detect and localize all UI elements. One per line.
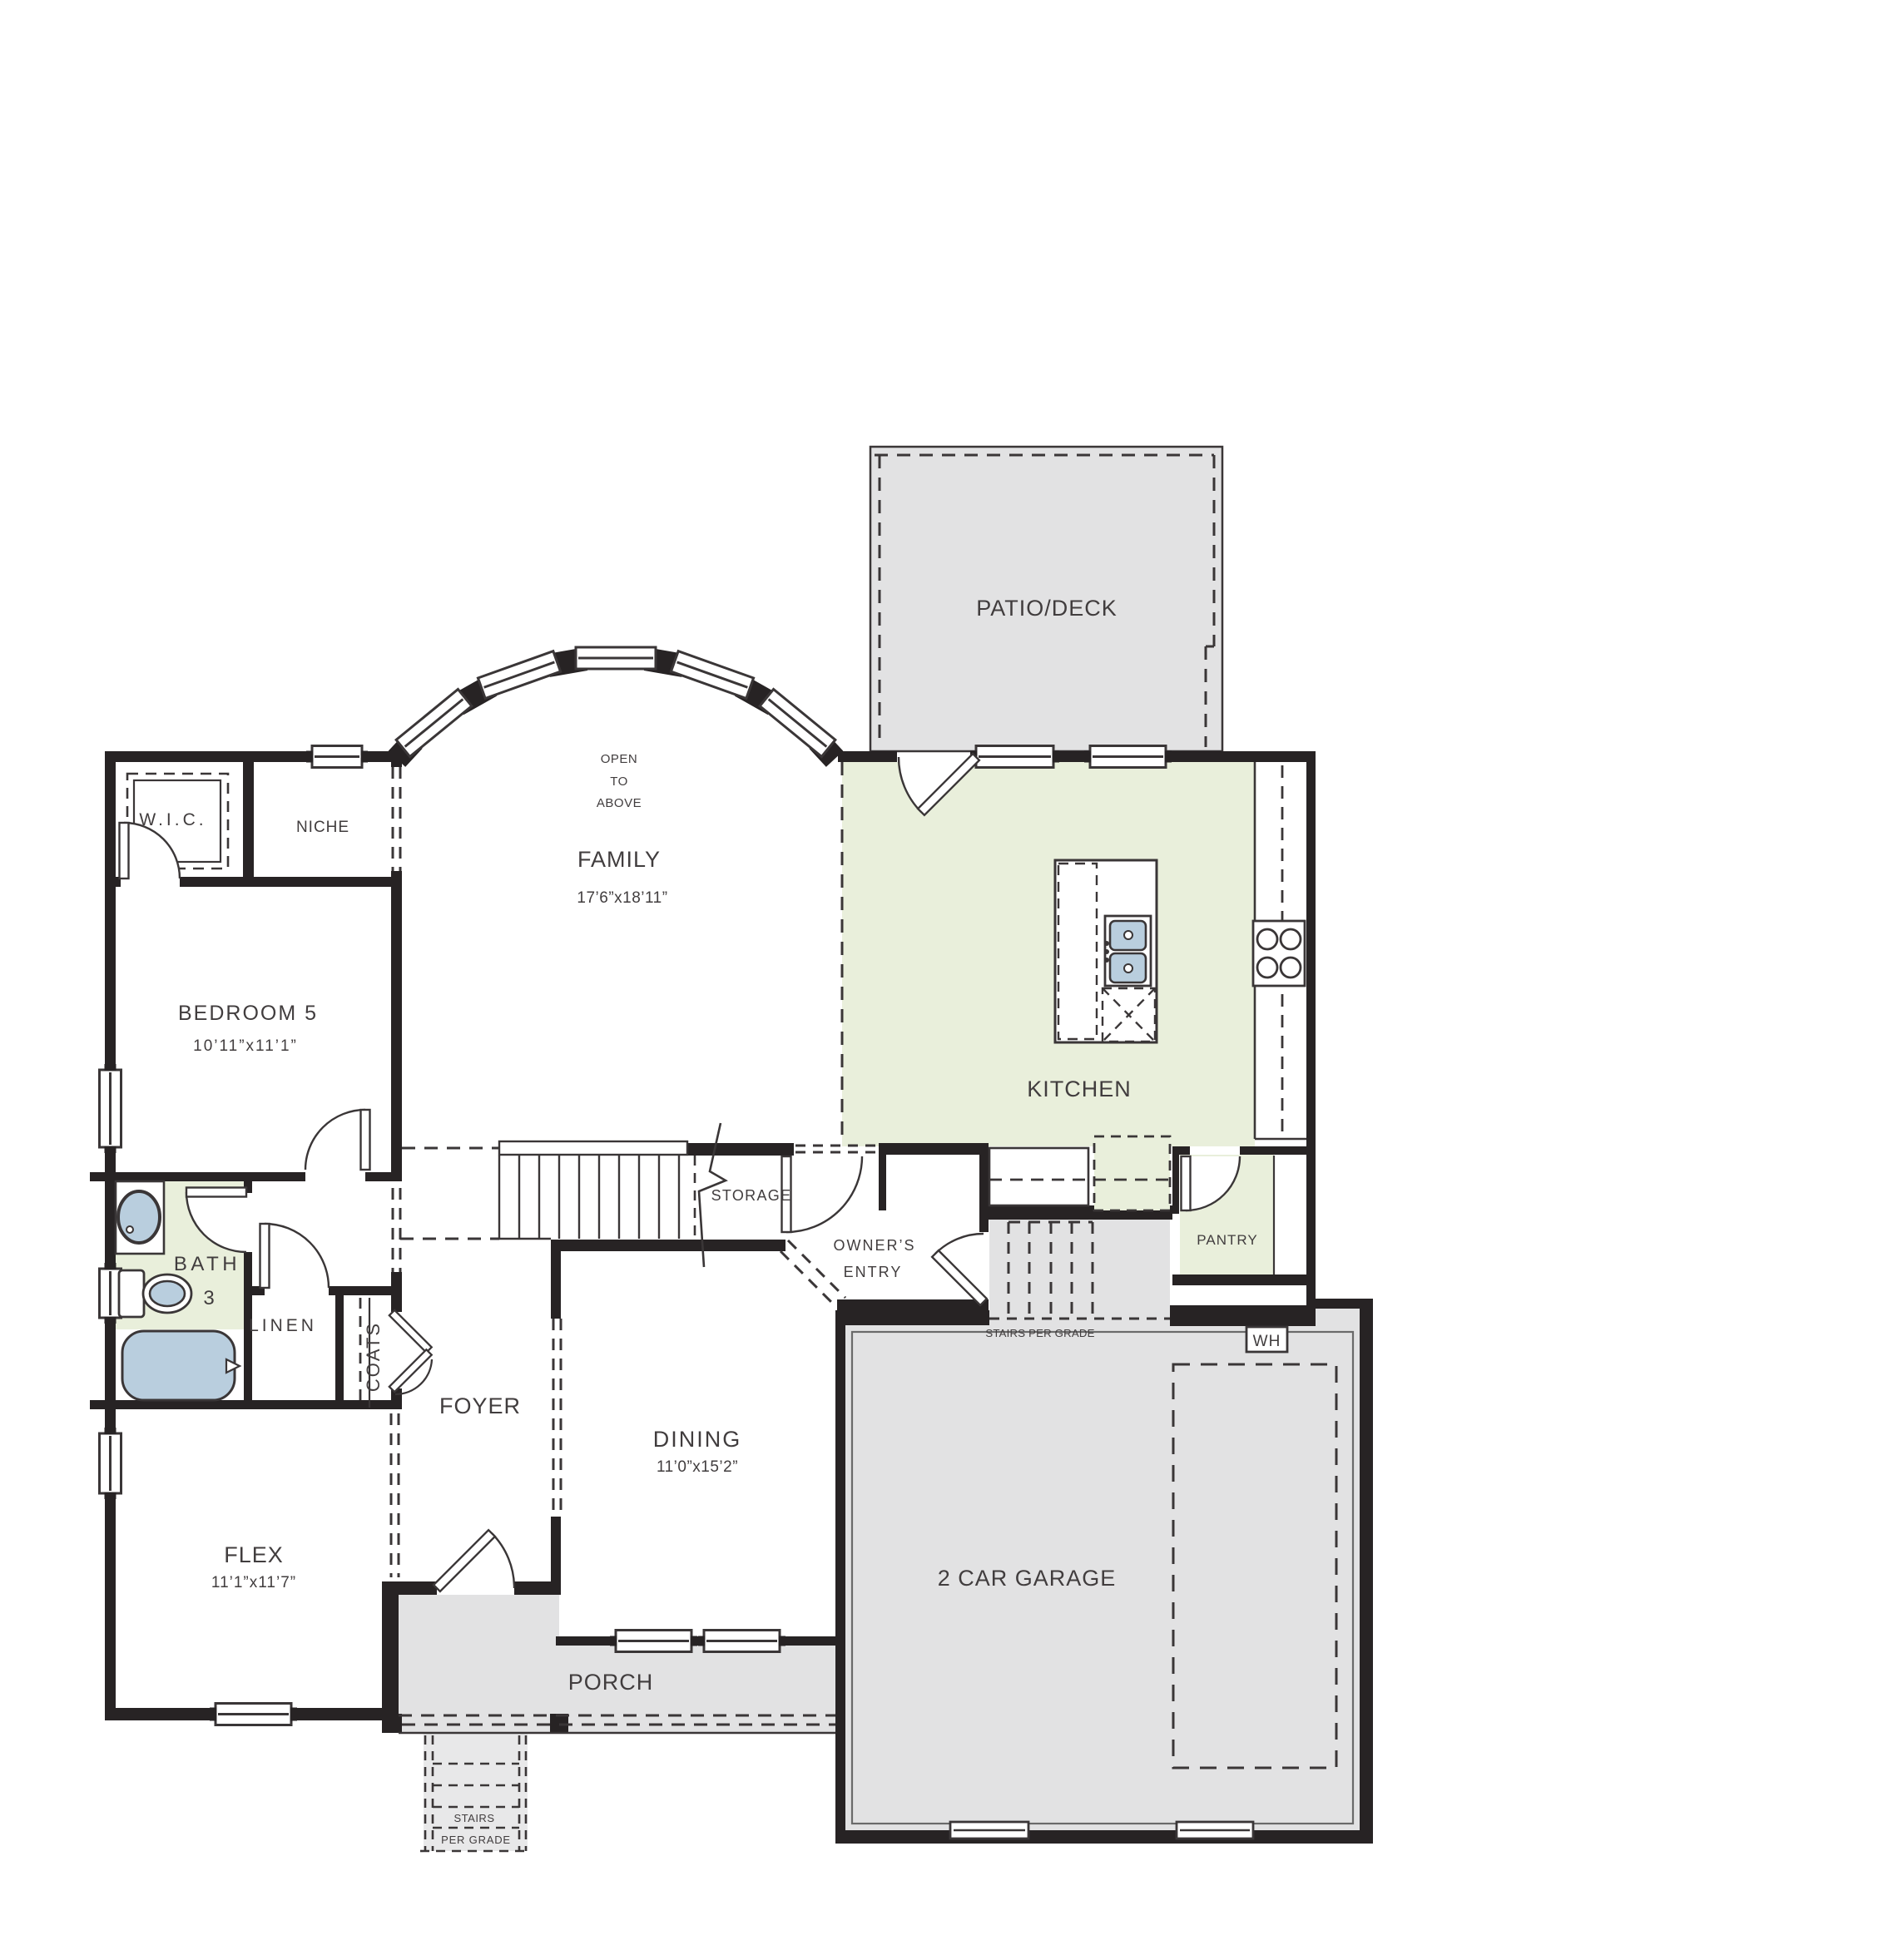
svg-text:STORAGE: STORAGE xyxy=(711,1187,792,1204)
svg-text:17’6”x18’11”: 17’6”x18’11” xyxy=(577,889,667,907)
svg-text:STAIRS PER GRADE: STAIRS PER GRADE xyxy=(985,1327,1094,1339)
svg-text:11’1”x11’7”: 11’1”x11’7” xyxy=(211,1574,296,1591)
svg-text:COATS: COATS xyxy=(363,1322,384,1392)
svg-text:OPEN: OPEN xyxy=(601,752,638,766)
svg-text:11’0”x15’2”: 11’0”x15’2” xyxy=(657,1458,738,1476)
svg-text:3: 3 xyxy=(203,1287,214,1309)
svg-text:STAIRS: STAIRS xyxy=(454,1812,495,1824)
svg-text:KITCHEN: KITCHEN xyxy=(1027,1077,1132,1101)
svg-text:10’11”x11’1”: 10’11”x11’1” xyxy=(193,1037,298,1055)
svg-text:TO: TO xyxy=(610,775,628,789)
svg-text:ABOVE: ABOVE xyxy=(597,796,642,810)
svg-text:2 CAR GARAGE: 2 CAR GARAGE xyxy=(938,1566,1117,1591)
svg-text:FLEX: FLEX xyxy=(224,1542,284,1567)
svg-text:PATIO/DECK: PATIO/DECK xyxy=(976,596,1118,621)
svg-text:OWNER’S: OWNER’S xyxy=(834,1237,916,1254)
svg-text:PER GRADE: PER GRADE xyxy=(441,1834,511,1846)
svg-text:FAMILY: FAMILY xyxy=(577,847,661,872)
svg-text:ENTRY: ENTRY xyxy=(844,1264,903,1280)
svg-text:PORCH: PORCH xyxy=(568,1670,654,1695)
svg-text:LINEN: LINEN xyxy=(249,1316,317,1335)
svg-text:BATH: BATH xyxy=(174,1253,240,1275)
svg-text:W.I.C.: W.I.C. xyxy=(139,810,206,829)
svg-text:PANTRY: PANTRY xyxy=(1197,1232,1257,1248)
svg-text:DINING: DINING xyxy=(653,1427,742,1452)
svg-text:WH: WH xyxy=(1253,1333,1281,1350)
svg-text:BEDROOM 5: BEDROOM 5 xyxy=(178,1002,318,1025)
svg-text:FOYER: FOYER xyxy=(439,1393,521,1418)
svg-text:NICHE: NICHE xyxy=(296,819,349,836)
